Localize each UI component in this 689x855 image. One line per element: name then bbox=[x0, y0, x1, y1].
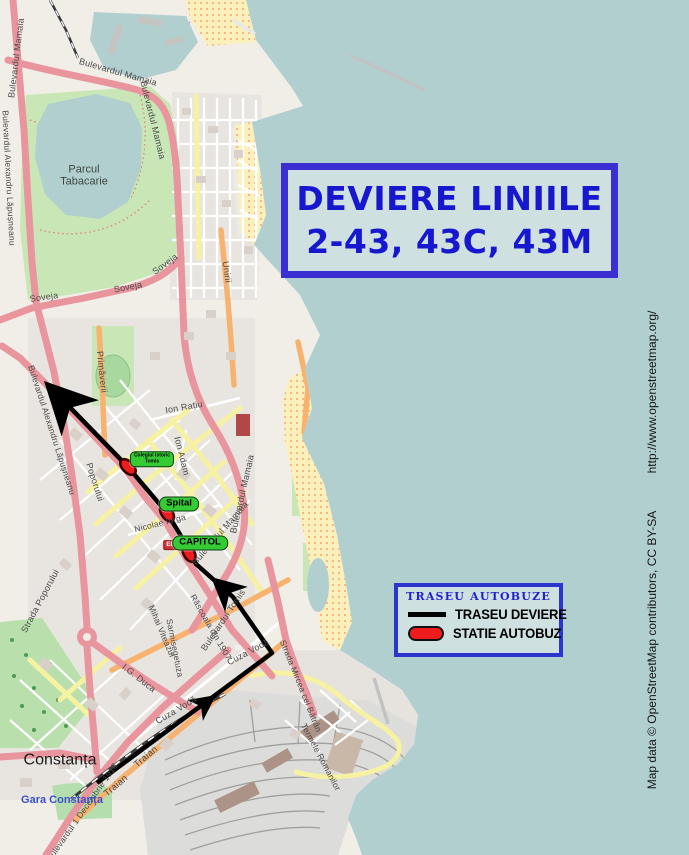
title-line-2: 2-43, 43C, 43M bbox=[306, 221, 593, 264]
legend-box: TRASEU AUTOBUZE TRASEU DEVIERE STATIE AU… bbox=[394, 583, 563, 657]
deviation-route-layer bbox=[0, 0, 689, 855]
osm-credit: Map data © OpenStreetMap contributors, C… bbox=[645, 511, 659, 790]
legend-title: TRASEU AUTOBUZE bbox=[398, 590, 559, 603]
osm-url: http://www.openstreetmap.org/ bbox=[645, 311, 659, 474]
title-line-1: DEVIERE LINIILE bbox=[296, 178, 602, 221]
legend-row-station: STATIE AUTOBUZ bbox=[398, 622, 559, 641]
route-arrowhead bbox=[187, 695, 216, 721]
bus-stop-swatch bbox=[408, 626, 444, 641]
title-box: DEVIERE LINIILE 2-43, 43C, 43M bbox=[281, 163, 618, 278]
legend-row-deviation: TRASEU DEVIERE bbox=[398, 603, 559, 622]
bus-stop-marker bbox=[157, 502, 177, 524]
bus-stop-marker bbox=[180, 542, 198, 564]
bus-stop-marker bbox=[117, 456, 138, 477]
route-line-swatch bbox=[408, 612, 446, 617]
bus-deviation-map-poster: Bulevardul MamaiaBulevardul MamaiaBuleva… bbox=[0, 0, 689, 855]
legend-label-station: STATIE AUTOBUZ bbox=[453, 625, 561, 641]
legend-label-deviation: TRASEU DEVIERE bbox=[455, 606, 567, 622]
